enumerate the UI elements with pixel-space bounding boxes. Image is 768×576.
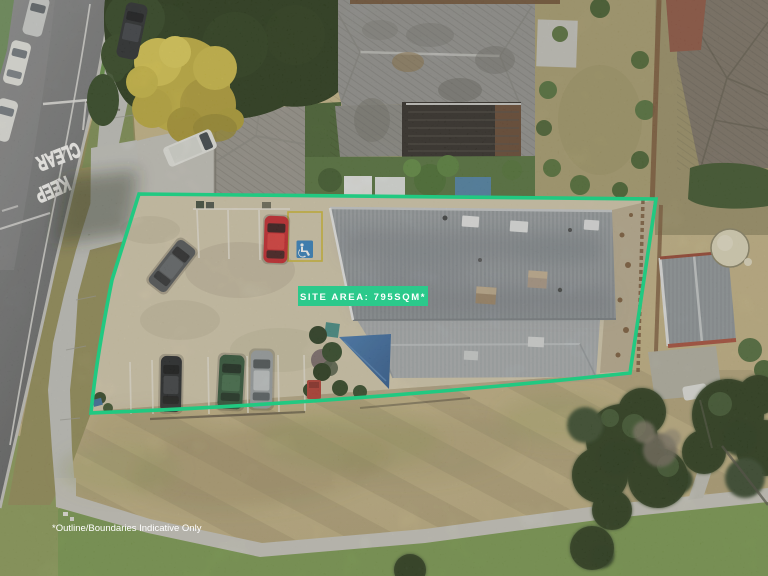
svg-text:*Outline/Boundaries Indicative: *Outline/Boundaries Indicative Only (52, 523, 202, 534)
svg-text:SITE AREA: 795SQM*: SITE AREA: 795SQM* (300, 292, 426, 303)
